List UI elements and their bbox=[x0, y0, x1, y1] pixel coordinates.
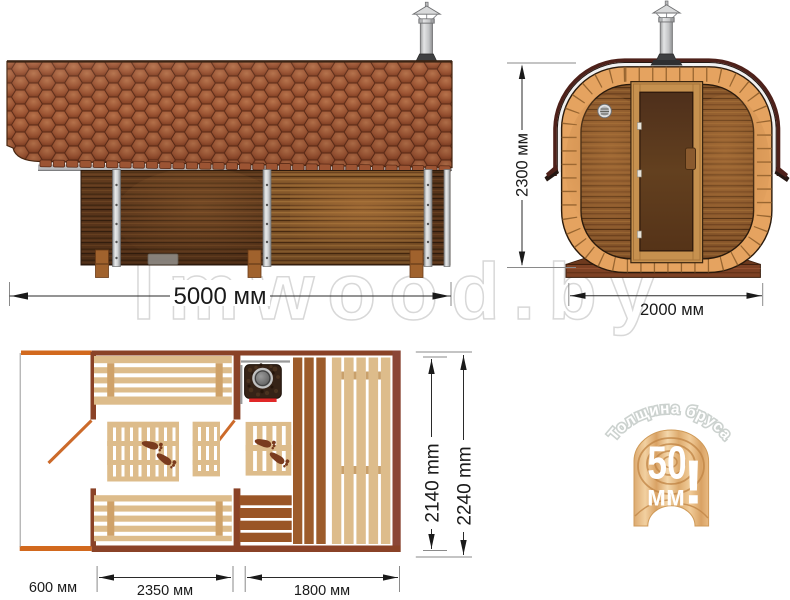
svg-text:600 мм: 600 мм bbox=[29, 580, 77, 596]
svg-text:2240 mm: 2240 mm bbox=[454, 446, 475, 525]
svg-text:!: ! bbox=[683, 449, 704, 518]
svg-text:мм: мм bbox=[647, 480, 685, 513]
svg-text:2140 mm: 2140 mm bbox=[422, 443, 443, 522]
svg-text:1800 мм: 1800 мм bbox=[294, 583, 350, 599]
svg-text:2000 мм: 2000 мм bbox=[640, 301, 704, 319]
svg-text:2300 мм: 2300 мм bbox=[514, 133, 532, 197]
svg-text:5000 мм: 5000 мм bbox=[173, 283, 266, 310]
svg-text:2350 мм: 2350 мм bbox=[137, 583, 193, 599]
